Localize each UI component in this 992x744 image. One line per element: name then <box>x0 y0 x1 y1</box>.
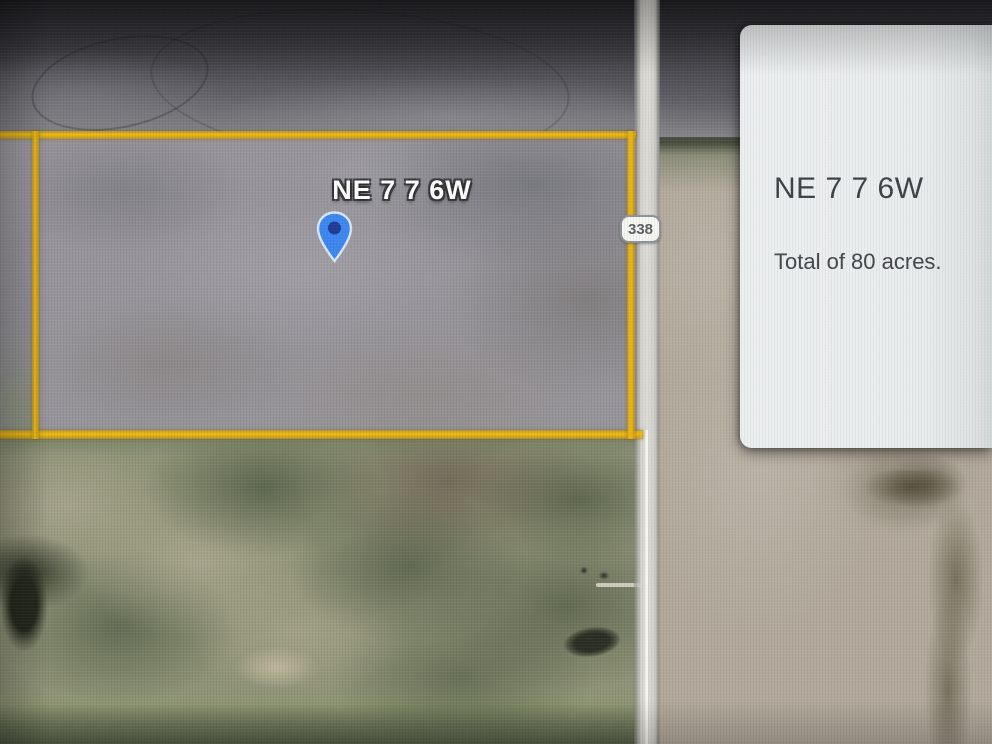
road-shield-badge: 338 <box>620 215 661 243</box>
map-viewport[interactable]: NE 7 7 6W 338 NE 7 7 6W Total of 80 acre… <box>0 0 992 744</box>
pond <box>0 556 48 652</box>
farm-buildings <box>576 560 616 586</box>
info-card-acreage: Total of 80 acres. <box>774 249 942 275</box>
parcel-map-label: NE 7 7 6W <box>322 175 482 206</box>
parcel-boundary-west <box>32 131 39 439</box>
tree-line <box>862 470 982 744</box>
satellite-field-south <box>0 438 659 744</box>
info-card-title: NE 7 7 6W <box>774 172 924 206</box>
parcel-boundary-north <box>0 131 636 139</box>
parcel-boundary-south <box>0 430 643 439</box>
map-pin-icon[interactable] <box>316 211 353 263</box>
parcel-boundary-east <box>627 131 635 439</box>
parcel-info-card: NE 7 7 6W Total of 80 acres. <box>740 25 992 448</box>
road-centerline <box>645 430 648 744</box>
